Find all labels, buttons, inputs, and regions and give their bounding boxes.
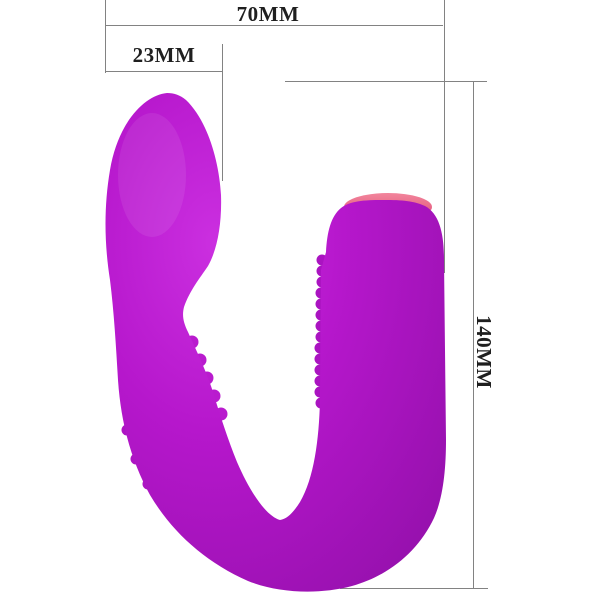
- product-photo: [0, 0, 600, 600]
- height-dimension-label: 140MM: [472, 302, 496, 402]
- head-width-dimension-label: 23MM: [114, 43, 214, 67]
- product-dimension-diagram: 70MM 23MM 140MM: [0, 0, 600, 600]
- width-dimension-label: 70MM: [218, 2, 318, 26]
- head-highlight: [118, 113, 186, 237]
